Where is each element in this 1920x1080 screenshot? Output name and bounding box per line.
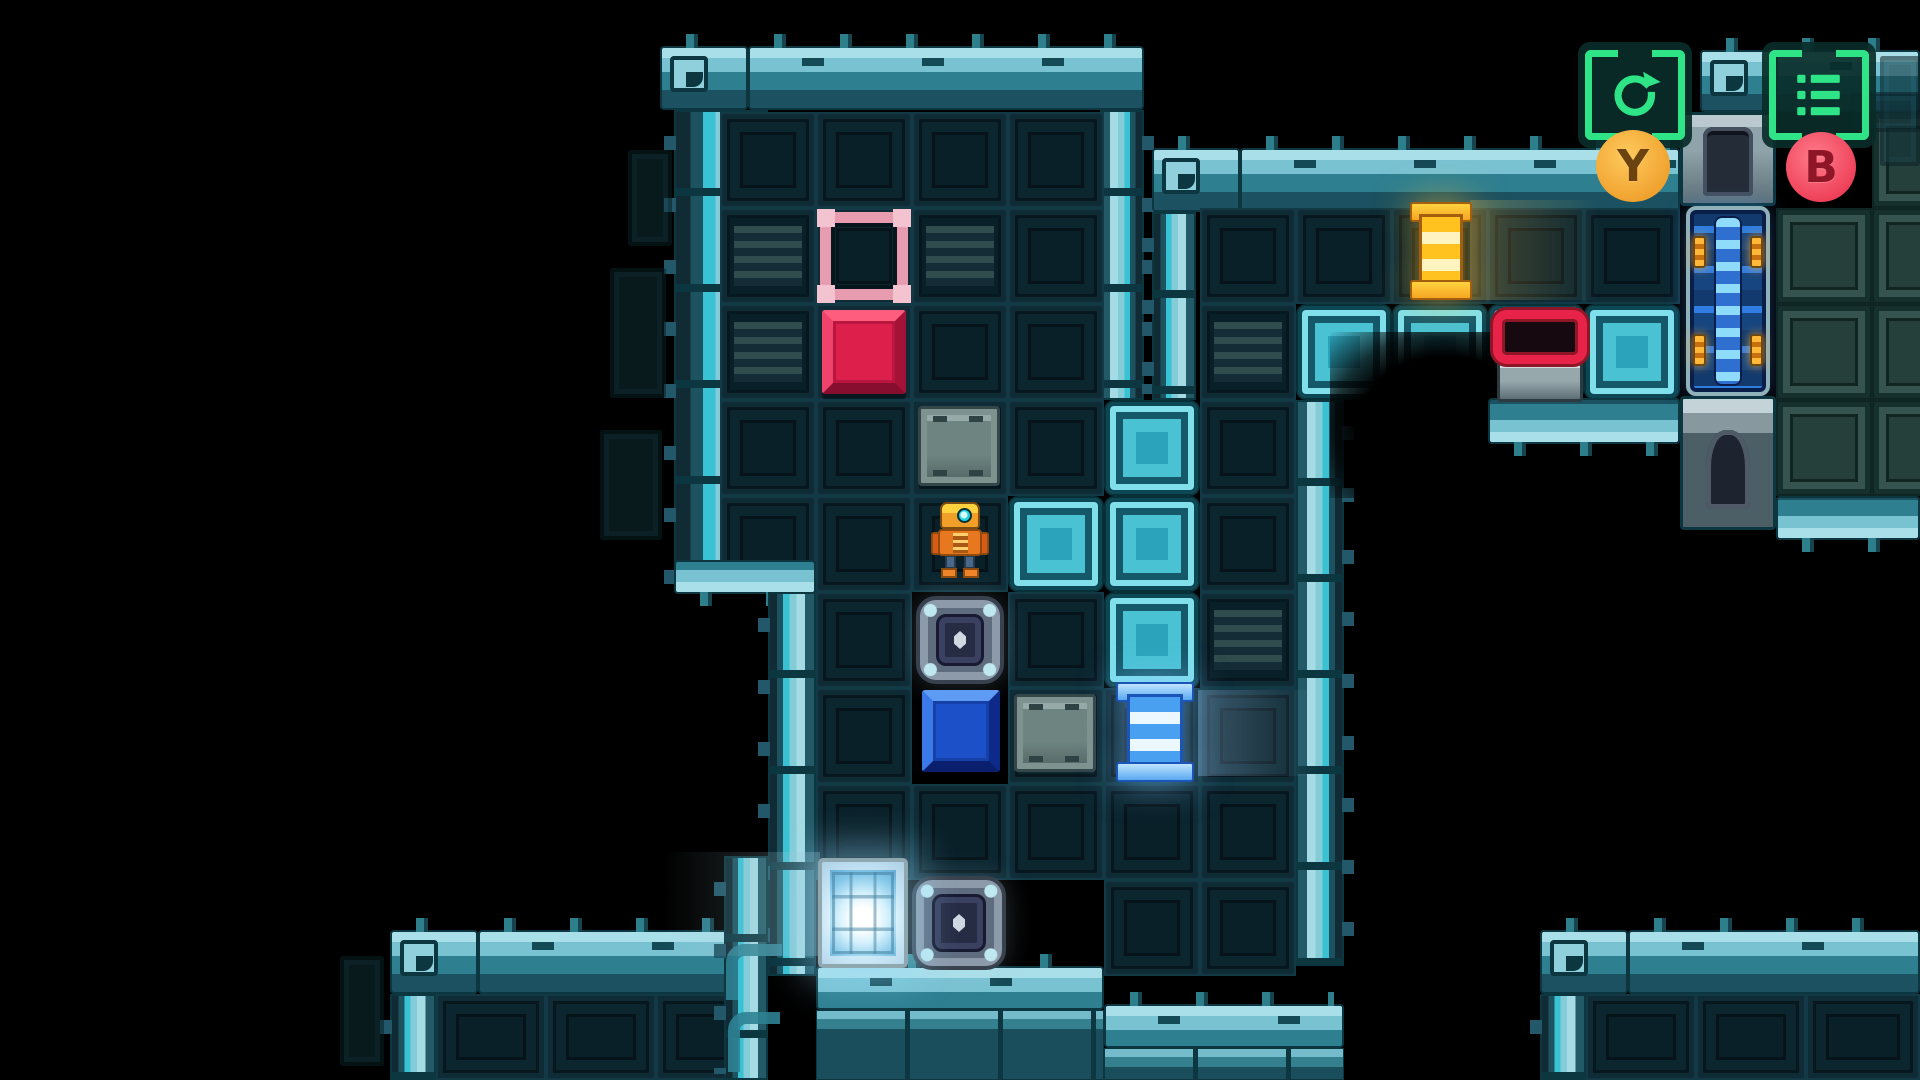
- wall-decal: [600, 430, 662, 540]
- wall-decal: [340, 956, 384, 1066]
- metal-crate: [1014, 694, 1096, 772]
- floor-tile: [1200, 496, 1296, 592]
- floor-tile: [720, 400, 816, 496]
- emblem: [400, 940, 438, 976]
- bootl: [941, 568, 957, 578]
- light-glow: [664, 852, 820, 956]
- eye: [957, 508, 972, 523]
- panel-floor-tile: [1872, 400, 1920, 496]
- wall-decal: [628, 150, 672, 246]
- energized-pad: [818, 858, 908, 968]
- machine-wall: [1008, 496, 1104, 592]
- vent-floor-tile: [720, 304, 816, 400]
- wall-top: [816, 966, 1104, 1010]
- floor-tile: [816, 688, 912, 784]
- grid: [832, 872, 894, 954]
- swbone: [1493, 310, 1587, 364]
- light-glow: [1470, 200, 1600, 300]
- light-glow: [1198, 690, 1318, 776]
- vent-floor-tile: [720, 208, 816, 304]
- wall-column: [1152, 212, 1196, 400]
- floor-tile: [1806, 994, 1920, 1080]
- machine-wall: [1104, 400, 1200, 496]
- blue-spool: [1116, 682, 1194, 782]
- wall-corner: [1152, 148, 1240, 212]
- machine-wall: [1584, 304, 1680, 400]
- floor-tile: [1586, 994, 1696, 1080]
- arch2: [1706, 430, 1749, 509]
- floor-tile: [1696, 994, 1806, 1080]
- emblem: [670, 56, 708, 92]
- c4: [893, 285, 911, 303]
- hatch-door: [912, 876, 1006, 970]
- panel-floor-tile: [1872, 304, 1920, 400]
- metal-crate: [918, 406, 1000, 486]
- wall-corner: [1540, 930, 1628, 994]
- floor-tile: [436, 994, 546, 1080]
- vent-floor-tile: [1200, 592, 1296, 688]
- wall-top: [1104, 1004, 1344, 1048]
- floor-tile: [1104, 784, 1200, 880]
- legr: [964, 555, 975, 569]
- floor-tile: [1008, 112, 1104, 208]
- energy-conduit: [1686, 206, 1770, 396]
- floor-tile: [912, 112, 1008, 208]
- legl: [945, 555, 956, 569]
- goal-target: [820, 212, 908, 300]
- panel-floor-tile: [1776, 304, 1872, 400]
- vent-floor-tile: [1200, 304, 1296, 400]
- l3: [1693, 334, 1706, 366]
- yellow-spool: [1410, 202, 1472, 300]
- vent-floor-tile: [912, 208, 1008, 304]
- floor-tile: [1008, 208, 1104, 304]
- emblem: [1550, 940, 1588, 976]
- wall-column: [390, 994, 436, 1080]
- player-robot: [933, 502, 987, 578]
- wall-top: [1628, 930, 1920, 994]
- sbody: [1419, 214, 1464, 288]
- bootr: [963, 568, 979, 578]
- panel-floor-tile: [1776, 208, 1872, 304]
- wall-slab: [816, 1010, 1104, 1080]
- wall-decal: [610, 268, 666, 398]
- c2: [893, 209, 911, 227]
- floor-tile: [816, 496, 912, 592]
- l2: [1750, 236, 1763, 268]
- controller-button-b[interactable]: B: [1786, 132, 1856, 202]
- floor-tile: [1104, 880, 1200, 976]
- floor-tile: [1008, 400, 1104, 496]
- wall-corner: [660, 46, 748, 110]
- arch: [1703, 127, 1753, 196]
- floor-tile: [720, 112, 816, 208]
- blue-box: [922, 690, 1000, 772]
- menu-list-icon: [1790, 66, 1848, 124]
- panel-floor-tile: [1776, 400, 1872, 496]
- panel-floor-tile: [1872, 208, 1920, 304]
- floor-tile: [1296, 208, 1392, 304]
- floor-tile: [1200, 400, 1296, 496]
- floor-tile: [912, 304, 1008, 400]
- wall-column: [1540, 994, 1586, 1080]
- floor-tile: [816, 592, 912, 688]
- machine-wall: [1104, 592, 1200, 688]
- menu-button[interactable]: B: [1762, 42, 1876, 148]
- floor-tile: [1008, 592, 1104, 688]
- floor-tile: [816, 400, 912, 496]
- pcore: [1714, 216, 1741, 386]
- l1: [1693, 236, 1706, 268]
- l4: [1750, 334, 1763, 366]
- red-switch: [1492, 306, 1588, 402]
- floor-tile: [1008, 784, 1104, 880]
- pipe-elbow: [728, 1012, 780, 1072]
- wall-slab: [1104, 1048, 1344, 1080]
- c1: [817, 209, 835, 227]
- floor-tile: [1200, 784, 1296, 880]
- game-stage: Y B: [0, 0, 1920, 1080]
- emblem: [1710, 60, 1748, 96]
- c3: [817, 285, 835, 303]
- machine-wall: [1104, 496, 1200, 592]
- wall-column: [1100, 110, 1144, 400]
- restart-icon: [1606, 66, 1664, 124]
- emblem: [1162, 158, 1200, 194]
- machine-base: [1680, 396, 1776, 530]
- floor-tile: [1008, 304, 1104, 400]
- red-box: [822, 310, 906, 394]
- floor-tile: [546, 994, 656, 1080]
- wall-bottom: [1488, 398, 1680, 444]
- ribs: [953, 533, 968, 553]
- wall-bottom: [1776, 496, 1920, 540]
- restart-button[interactable]: Y: [1578, 42, 1692, 148]
- controller-button-y[interactable]: Y: [1596, 130, 1670, 202]
- wall-bottom: [674, 560, 816, 594]
- floor-tile: [912, 784, 1008, 880]
- floor-tile: [1200, 880, 1296, 976]
- floor-tile: [1200, 208, 1296, 304]
- wall-corner: [390, 930, 478, 994]
- floor-tile: [816, 112, 912, 208]
- sbody: [1127, 694, 1183, 770]
- hatch-door: [916, 596, 1004, 684]
- wall-top: [748, 46, 1144, 110]
